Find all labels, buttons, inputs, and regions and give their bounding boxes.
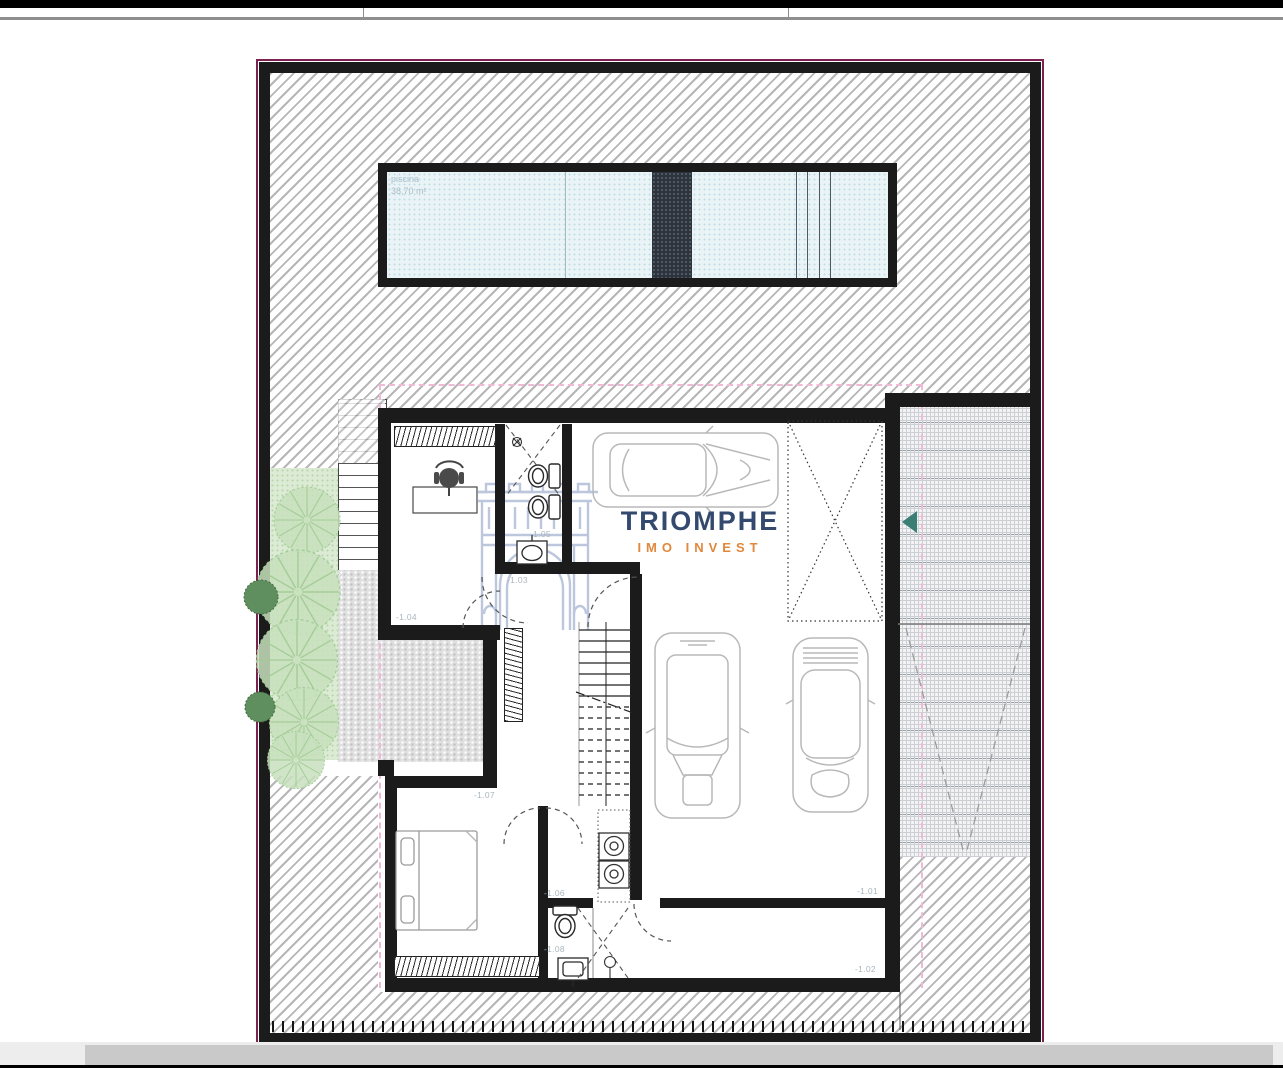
wall: [495, 424, 505, 562]
setback-line-right: [921, 384, 923, 988]
logo-title: TRIOMPHE: [565, 506, 835, 537]
wall: [378, 760, 394, 776]
wall: [885, 395, 900, 992]
wall: [378, 625, 500, 640]
hall-closet: [504, 628, 523, 722]
floor-plan-page: piscina 38,70 m²: [0, 0, 1283, 1068]
wardrobe: [394, 956, 540, 977]
wall: [495, 562, 640, 574]
scrollbar-thumb[interactable]: [85, 1045, 1273, 1066]
wall: [378, 408, 391, 632]
wall: [378, 408, 900, 423]
level-label: -1.06: [544, 888, 565, 898]
level-label: -1.07: [474, 790, 495, 800]
level-label: -1.01: [857, 886, 878, 896]
level-label: -1.02: [855, 964, 876, 974]
level-label: -1.08: [544, 944, 565, 954]
wall: [660, 898, 885, 908]
closet: [394, 426, 496, 447]
wall: [543, 898, 593, 908]
wall: [885, 393, 1030, 407]
wall: [385, 776, 497, 788]
wall: [385, 978, 900, 992]
wall: [483, 627, 497, 776]
setback-line-top: [379, 384, 922, 386]
level-label: -1.04: [396, 612, 417, 622]
level-label: -1.03: [507, 575, 528, 585]
logo: TRIOMPHE IMO INVEST: [565, 506, 835, 555]
boundary-ticks: [272, 1021, 1030, 1032]
level-label: -1.05: [530, 529, 551, 539]
wall: [630, 574, 642, 900]
logo-subtitle: IMO INVEST: [565, 540, 835, 555]
